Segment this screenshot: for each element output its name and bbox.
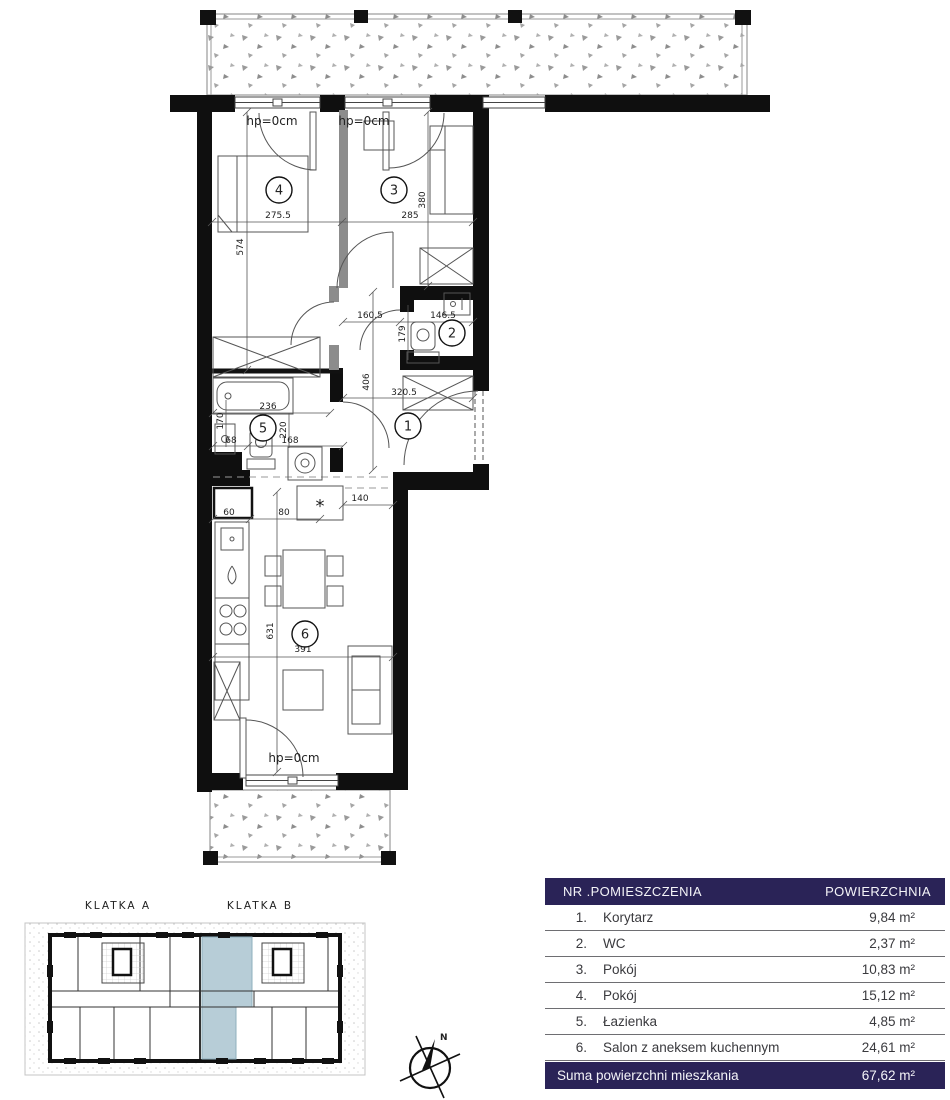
window-room3 bbox=[345, 97, 430, 108]
tv-cabinet-x bbox=[214, 662, 240, 720]
klatka-b-label: KLATKA B bbox=[227, 900, 293, 912]
hp-label: hp=0cm bbox=[246, 114, 297, 128]
dim-label: 631 bbox=[266, 622, 276, 639]
dim-label: 170 bbox=[216, 412, 226, 429]
room-area: 10,83 m² bbox=[862, 962, 945, 977]
bottom-balcony bbox=[203, 790, 396, 865]
dim-label: 179 bbox=[398, 325, 408, 342]
room-3-label: 3 bbox=[381, 177, 407, 203]
table-row: 2. WC 2,37 m² bbox=[545, 931, 945, 957]
stove-burners bbox=[220, 605, 246, 635]
area-column-header: POWIERZCHNIA bbox=[825, 884, 931, 899]
door-leaf bbox=[310, 112, 316, 170]
hp-label: hp=0cm bbox=[338, 114, 389, 128]
dim-label: 140 bbox=[351, 494, 368, 504]
balcony-post bbox=[200, 10, 216, 25]
shelf bbox=[430, 126, 473, 214]
compass-rose-icon bbox=[400, 1036, 460, 1098]
hp-label: hp=0cm bbox=[268, 751, 319, 765]
total-label: Suma powierzchni mieszkania bbox=[557, 1068, 739, 1083]
window-room4 bbox=[235, 97, 320, 108]
door-arc-room4 bbox=[291, 302, 334, 345]
dim-label: 68 bbox=[225, 436, 237, 446]
top-balcony bbox=[200, 10, 751, 95]
balcony-post bbox=[508, 10, 522, 23]
table-row: 1. Korytarz 9,84 m² bbox=[545, 905, 945, 931]
north-label: N bbox=[440, 1033, 448, 1043]
balcony-door-window bbox=[246, 775, 338, 786]
door-leaf bbox=[240, 718, 246, 778]
room-1-label: 1 bbox=[395, 413, 421, 439]
table-row: 3. Pokój 10,83 m² bbox=[545, 957, 945, 983]
dim-label: 80 bbox=[278, 508, 290, 518]
compass: N bbox=[388, 1028, 474, 1100]
svg-text:4: 4 bbox=[275, 184, 283, 199]
washing-machine bbox=[288, 447, 322, 480]
walls bbox=[170, 95, 770, 792]
dim-label: 574 bbox=[236, 238, 246, 255]
dim-label: 60 bbox=[223, 508, 235, 518]
bathtub bbox=[213, 378, 293, 414]
room-area: 9,84 m² bbox=[869, 910, 945, 925]
room-area: 24,61 m² bbox=[862, 1040, 945, 1055]
room-area: 4,85 m² bbox=[869, 1014, 945, 1029]
room-name: Pokój bbox=[603, 988, 862, 1003]
room-4-label: 4 bbox=[266, 177, 292, 203]
kitchen-counter bbox=[215, 522, 249, 700]
room-no: 3. bbox=[561, 962, 587, 977]
room-name: Pokój bbox=[603, 962, 862, 977]
svg-text:1: 1 bbox=[404, 420, 412, 435]
building-overview-plan: KLATKA A KLATKA B bbox=[10, 895, 380, 1085]
dim-label: 285 bbox=[401, 211, 418, 221]
svg-text:2: 2 bbox=[448, 327, 456, 342]
rooms-column-header: NR .POMIESZCZENIA bbox=[563, 884, 702, 899]
door-arc-balcony bbox=[246, 720, 303, 777]
room-area-table: NR .POMIESZCZENIA POWIERZCHNIA 1. Koryta… bbox=[545, 878, 945, 1089]
svg-text:5: 5 bbox=[259, 422, 267, 437]
star-symbol: * bbox=[316, 496, 325, 517]
room-area: 15,12 m² bbox=[862, 988, 945, 1003]
door-arc-room3-window bbox=[389, 113, 444, 168]
room-2-label: 2 bbox=[439, 320, 465, 346]
coffee-table bbox=[283, 670, 323, 710]
svg-text:3: 3 bbox=[390, 184, 398, 199]
balcony-post bbox=[354, 10, 368, 23]
dim-label: 236 bbox=[259, 402, 276, 412]
table-row: 5. Łazienka 4,85 m² bbox=[545, 1009, 945, 1035]
table-row: 6. Salon z aneksem kuchennym 24,61 m² bbox=[545, 1035, 945, 1061]
dim-label: 160.5 bbox=[357, 311, 383, 321]
room-5-label: 5 bbox=[250, 415, 276, 441]
dim-label: 406 bbox=[362, 373, 372, 390]
table-row: 4. Pokój 15,12 m² bbox=[545, 983, 945, 1009]
sink-drop-icon bbox=[228, 566, 236, 584]
room-no: 2. bbox=[561, 936, 587, 951]
room-name: Łazienka bbox=[603, 1014, 869, 1029]
floor-plan-page: { "colors": { "accent_navy": "#2a2357", … bbox=[0, 0, 950, 1100]
light-walls bbox=[329, 110, 348, 370]
dim-label: 275.5 bbox=[265, 211, 291, 221]
window-neighbor bbox=[483, 97, 545, 108]
bed bbox=[218, 156, 308, 232]
room-no: 5. bbox=[561, 1014, 587, 1029]
klatka-a-label: KLATKA A bbox=[85, 900, 151, 912]
room-no: 6. bbox=[561, 1040, 587, 1055]
apartment-floor-plan: 275.5 285 574 380 160.5 146.5 179 406 32… bbox=[0, 0, 950, 880]
svg-text:6: 6 bbox=[301, 628, 309, 643]
balcony-post bbox=[381, 851, 396, 865]
door-arc-bathroom bbox=[343, 402, 389, 448]
room-name: Korytarz bbox=[603, 910, 869, 925]
room-6-label: 6 bbox=[292, 621, 318, 647]
area-table-header: NR .POMIESZCZENIA POWIERZCHNIA bbox=[545, 878, 945, 905]
total-area: 67,62 m² bbox=[862, 1068, 915, 1083]
room-no: 1. bbox=[561, 910, 587, 925]
room-no: 4. bbox=[561, 988, 587, 1003]
area-table-footer: Suma powierzchni mieszkania 67,62 m² bbox=[545, 1062, 945, 1089]
room-area: 2,37 m² bbox=[869, 936, 945, 951]
dim-label: 380 bbox=[418, 191, 428, 208]
balcony-post bbox=[203, 851, 218, 865]
sofa bbox=[348, 646, 392, 734]
balcony-post bbox=[735, 10, 751, 25]
dim-label: 168 bbox=[281, 436, 298, 446]
room-name: Salon z aneksem kuchennym bbox=[603, 1040, 862, 1055]
dim-label: 320.5 bbox=[391, 388, 417, 398]
room-name: WC bbox=[603, 936, 869, 951]
